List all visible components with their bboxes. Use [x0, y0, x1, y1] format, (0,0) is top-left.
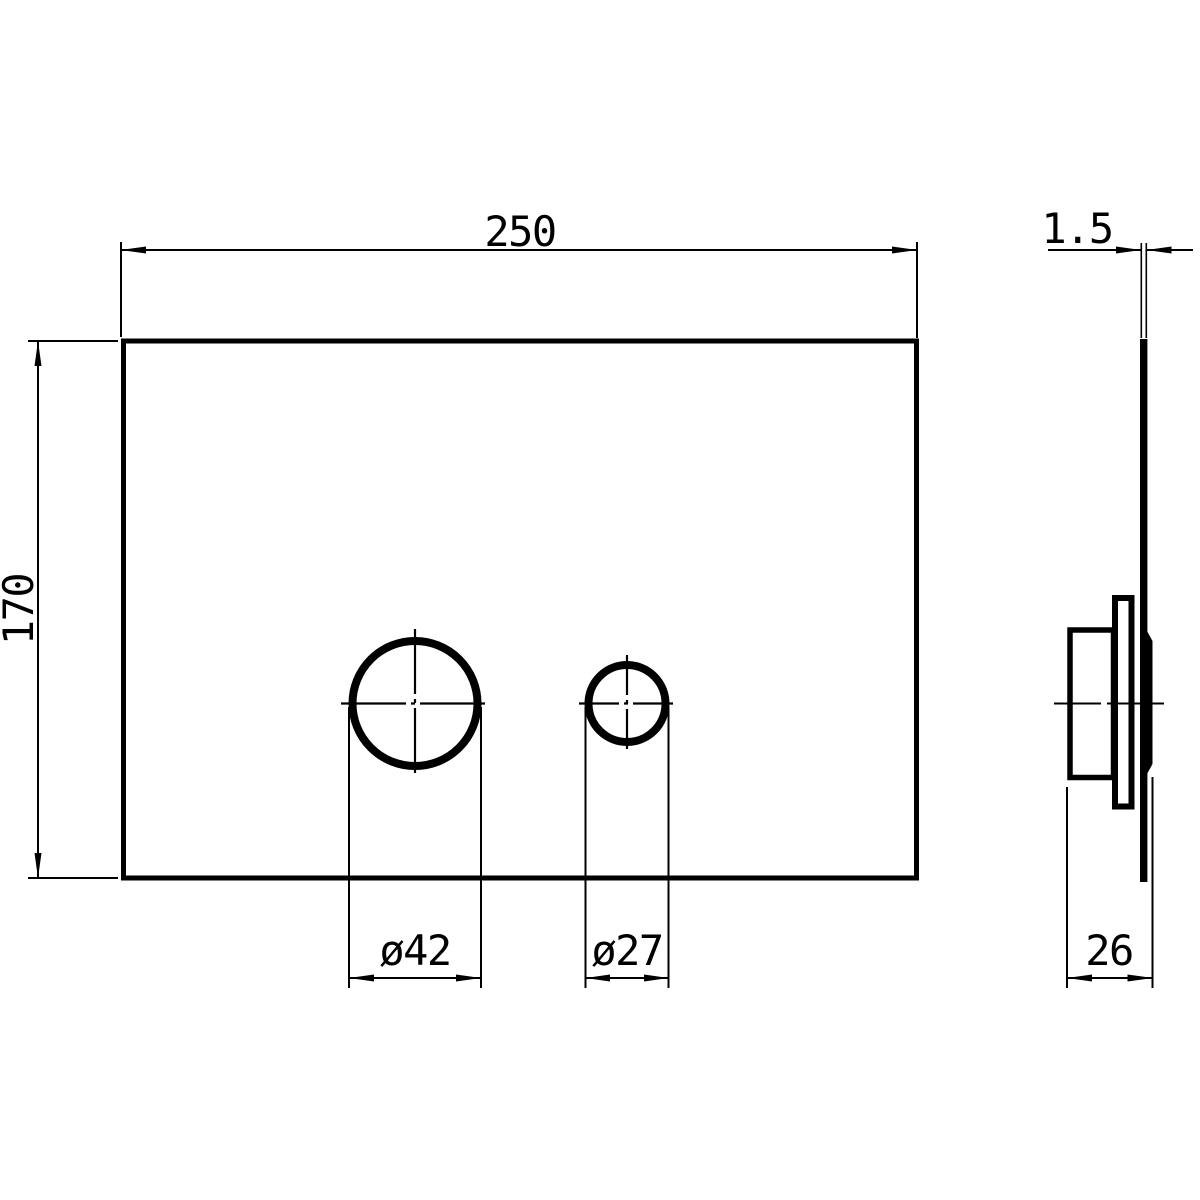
width-dim-arrow-right: [892, 247, 917, 254]
front-view-plate-outline: [124, 341, 917, 878]
small-hole-dim-arrow-right: [644, 975, 669, 982]
height-dim-arrow-bottom: [35, 853, 42, 878]
side-view-mounting-frame: [1115, 598, 1132, 807]
large-hole-dim-arrow-right: [456, 975, 481, 982]
small-hole-dim-arrow-left: [586, 975, 611, 982]
large-hole-dia-label: ø42: [379, 926, 450, 975]
drawing-canvas: 250 170 ø42 ø27: [0, 0, 1200, 1200]
depth-dim-label: 26: [1085, 926, 1133, 975]
large-hole-dim-arrow-left: [349, 975, 374, 982]
small-hole-dia-label: ø27: [591, 926, 662, 975]
width-dim-arrow-left: [121, 247, 146, 254]
height-dim-arrow-top: [35, 341, 42, 366]
width-dim-label: 250: [484, 207, 555, 256]
thickness-dim-label: 1.5: [1041, 204, 1112, 253]
technical-drawing: 250 170 ø42 ø27: [0, 0, 1200, 1200]
side-view-plate-edge: [1140, 339, 1147, 882]
thickness-dim-arrow-left: [1116, 247, 1141, 254]
height-dim-label: 170: [0, 574, 43, 645]
depth-dim-arrow-left: [1067, 975, 1092, 982]
depth-dim-arrow-right: [1128, 975, 1153, 982]
thickness-dim-arrow-right: [1147, 247, 1172, 254]
